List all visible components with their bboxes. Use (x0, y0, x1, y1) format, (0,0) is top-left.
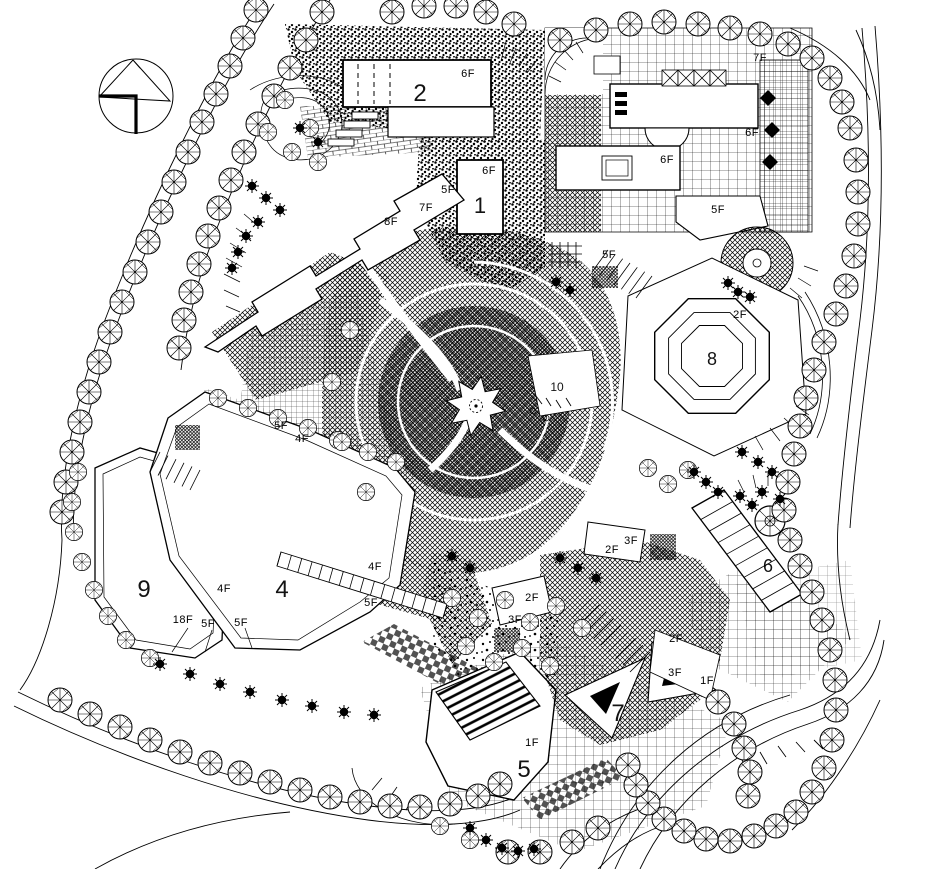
shrub-icon (511, 844, 525, 858)
tree-icon (278, 56, 302, 80)
tower-grid (760, 60, 808, 232)
tree-icon (108, 715, 132, 739)
area-10-terrace (528, 350, 600, 416)
shrub-icon (243, 685, 257, 699)
tree-icon (732, 736, 756, 760)
tree-icon (207, 196, 231, 220)
building-number-4: 4 (275, 576, 288, 603)
tree-icon (788, 554, 812, 578)
tree-icon (639, 459, 656, 476)
tree-icon (466, 784, 490, 808)
tree-icon (764, 814, 788, 838)
shrub-icon (765, 465, 779, 479)
tree-icon (742, 824, 766, 848)
tree-icon (209, 389, 226, 406)
floor-label: 3F (624, 535, 638, 547)
tree-icon (659, 475, 676, 492)
floor-label: 7F (419, 202, 433, 214)
shrub-icon (213, 677, 227, 691)
tree-icon (69, 463, 86, 480)
tree-icon (616, 753, 640, 777)
shrub-icon (731, 285, 745, 299)
tree-icon (204, 82, 228, 106)
shrub-icon (293, 121, 307, 135)
tree-icon (172, 308, 196, 332)
floor-label: 4F (217, 583, 231, 595)
tree-icon (244, 0, 268, 22)
shrub-icon (589, 571, 603, 585)
tree-icon (738, 760, 762, 784)
tree-icon (584, 18, 608, 42)
shrub-icon (711, 485, 725, 499)
tree-icon (387, 453, 404, 470)
tree-icon (48, 688, 72, 712)
tree-icon (444, 0, 468, 18)
tree-icon (348, 790, 372, 814)
shrub-icon (527, 842, 541, 856)
tree-icon (586, 816, 610, 840)
tree-icon (618, 12, 642, 36)
floor-label: 6F (482, 165, 496, 177)
floor-label: 2F (605, 544, 619, 556)
tree-icon (323, 373, 340, 390)
tree-icon (359, 443, 376, 460)
tree-icon (722, 712, 746, 736)
tree-icon (65, 523, 82, 540)
tree-icon (231, 26, 255, 50)
building-number-9: 9 (137, 576, 150, 603)
tree-icon (547, 597, 564, 614)
tree-icon (239, 399, 256, 416)
tree-icon (736, 784, 760, 808)
shrub-icon (231, 245, 245, 259)
tree-icon (810, 608, 834, 632)
tree-icon (167, 336, 191, 360)
tree-icon (309, 153, 326, 170)
building-7f-bar (610, 84, 758, 128)
tree-icon (73, 553, 90, 570)
floor-label: 5F (711, 204, 725, 216)
north-arrow-icon (99, 59, 173, 134)
tree-icon (560, 830, 584, 854)
tree-icon (718, 16, 742, 40)
floor-label: 18F (173, 614, 193, 626)
floor-label: 3F (508, 614, 522, 626)
building-number-2: 2 (413, 80, 426, 107)
tree-icon (778, 528, 802, 552)
floor-label: 1F (700, 675, 714, 687)
shrub-icon (239, 229, 253, 243)
tree-icon (117, 631, 134, 648)
tree-icon (824, 302, 848, 326)
tree-icon (844, 148, 868, 172)
tree-icon (68, 410, 92, 434)
shrub-icon (549, 275, 563, 289)
tree-icon (198, 751, 222, 775)
tree-icon (513, 639, 530, 656)
tree-icon (842, 244, 866, 268)
floor-label: 5F (234, 617, 248, 629)
tree-icon (788, 414, 812, 438)
tree-icon (190, 110, 214, 134)
shrub-icon (751, 455, 765, 469)
tree-icon (502, 12, 526, 36)
tree-icon (110, 290, 134, 314)
shrub-icon (245, 179, 259, 193)
floor-label: 5F (441, 184, 455, 196)
tree-icon (846, 212, 870, 236)
shrub-icon (699, 475, 713, 489)
floor-label: 7F (753, 52, 767, 64)
tree-icon (77, 380, 101, 404)
tree-icon (823, 668, 847, 692)
shrub-icon (687, 465, 701, 479)
tree-icon (380, 0, 404, 24)
building-number-7: 7 (611, 700, 624, 727)
floor-label: 5F (201, 618, 215, 630)
tree-icon (812, 330, 836, 354)
floor-label: 6F (461, 68, 475, 80)
tree-icon (573, 619, 590, 636)
tree-icon (838, 116, 862, 140)
tree-icon (408, 795, 432, 819)
tree-icon (718, 829, 742, 853)
building-number-5: 5 (517, 756, 530, 783)
tree-icon (488, 772, 512, 796)
shrub-icon (553, 551, 567, 565)
shrub-icon (311, 135, 325, 149)
floor-label: 3F (668, 667, 682, 679)
tree-icon (228, 761, 252, 785)
tree-icon (218, 54, 242, 78)
shrub-icon (495, 841, 509, 855)
tree-icon (288, 778, 312, 802)
tree-icon (824, 698, 848, 722)
tree-icon (123, 260, 147, 284)
tree-icon (782, 442, 806, 466)
tree-icon (138, 728, 162, 752)
site-plan-drawing: 12456789106F6F5F7F8F7F6F6F5F5F2F5F4F4F5F… (0, 0, 925, 869)
building-number-1: 1 (474, 193, 486, 218)
floor-label: 5F (602, 249, 616, 261)
tree-icon (443, 589, 460, 606)
floor-label: 6F (745, 127, 759, 139)
shrub-icon (305, 699, 319, 713)
floor-label: 4F (368, 561, 382, 573)
shrub-icon (743, 290, 757, 304)
building-number-8: 8 (707, 349, 717, 369)
floor-label: 5F (364, 597, 378, 609)
floor-label: 5F (274, 420, 288, 432)
tree-icon (341, 321, 358, 338)
tree-icon (378, 794, 402, 818)
floor-label: 6F (660, 154, 674, 166)
shrub-icon (275, 693, 289, 707)
tree-icon (187, 252, 211, 276)
tree-icon (149, 200, 173, 224)
tree-icon (818, 66, 842, 90)
tree-icon (87, 350, 111, 374)
tree-icon (694, 827, 718, 851)
tree-icon (776, 470, 800, 494)
building-number-6: 6 (763, 556, 773, 576)
tree-icon (706, 690, 730, 714)
tree-icon (276, 91, 293, 108)
tree-icon (219, 168, 243, 192)
shrub-icon (337, 705, 351, 719)
tree-icon (818, 638, 842, 662)
shrub-icon (273, 203, 287, 217)
tree-icon (294, 28, 318, 52)
tree-icon (431, 817, 448, 834)
shrub-icon (479, 833, 493, 847)
tree-icon (846, 180, 870, 204)
tree-icon (357, 483, 374, 500)
tree-icon (800, 46, 824, 70)
tree-icon (78, 702, 102, 726)
tree-icon (258, 770, 282, 794)
tree-icon (776, 32, 800, 56)
tree-icon (830, 90, 854, 114)
tree-icon (548, 28, 572, 52)
floor-label: 4F (295, 433, 309, 445)
tree-icon (800, 580, 824, 604)
tree-icon (176, 140, 200, 164)
tree-icon (496, 591, 513, 608)
site-plan-page: 12456789106F6F5F7F8F7F6F6F5F5F2F5F4F4F5F… (0, 0, 925, 869)
tree-icon (60, 440, 84, 464)
shrub-icon (463, 561, 477, 575)
shrub-icon (733, 489, 747, 503)
tree-icon (834, 274, 858, 298)
tree-icon (812, 756, 836, 780)
tree-icon (98, 320, 122, 344)
tree-icon (748, 22, 772, 46)
floor-label: 2F (669, 633, 683, 645)
tree-icon (800, 780, 824, 804)
tree-icon (283, 143, 300, 160)
tree-icon (162, 170, 186, 194)
shrub-icon (735, 445, 749, 459)
tree-icon (521, 613, 538, 630)
tree-icon (412, 0, 436, 18)
tree-icon (485, 653, 502, 670)
tree-icon (63, 493, 80, 510)
shrub-icon (563, 283, 577, 297)
floor-label: 2F (525, 592, 539, 604)
shrub-icon (755, 485, 769, 499)
tree-icon (232, 140, 256, 164)
tree-icon (686, 12, 710, 36)
tree-icon (179, 280, 203, 304)
tree-icon (469, 609, 486, 626)
tree-icon (99, 607, 116, 624)
tree-icon (652, 10, 676, 34)
floor-label: 8F (384, 216, 398, 228)
floor-label: 2F (733, 309, 747, 321)
tree-icon (196, 224, 220, 248)
tree-icon (802, 358, 826, 382)
floor-label: 1F (525, 737, 539, 749)
shrub-icon (571, 561, 585, 575)
tree-icon (457, 637, 474, 654)
tree-icon (794, 386, 818, 410)
tree-icon (259, 123, 276, 140)
shrub-icon (183, 667, 197, 681)
building-number-10: 10 (550, 380, 564, 394)
tree-icon (85, 581, 102, 598)
tree-icon (438, 792, 462, 816)
tree-icon (318, 785, 342, 809)
shrub-icon (745, 498, 759, 512)
tree-icon (474, 0, 498, 24)
shrub-icon (445, 549, 459, 563)
shrub-icon (225, 261, 239, 275)
shrub-icon (251, 215, 265, 229)
tree-icon (168, 740, 192, 764)
shrub-icon (721, 276, 735, 290)
tree-icon (333, 433, 350, 450)
tree-icon (310, 0, 334, 24)
shrub-icon (463, 821, 477, 835)
tree-icon (136, 230, 160, 254)
shrub-icon (773, 492, 787, 506)
shrub-icon (259, 191, 273, 205)
shrub-icon (367, 708, 381, 722)
tree-icon (772, 498, 796, 522)
tree-icon (784, 800, 808, 824)
shrub-icon (153, 657, 167, 671)
tree-icon (541, 657, 558, 674)
tree-icon (820, 728, 844, 752)
